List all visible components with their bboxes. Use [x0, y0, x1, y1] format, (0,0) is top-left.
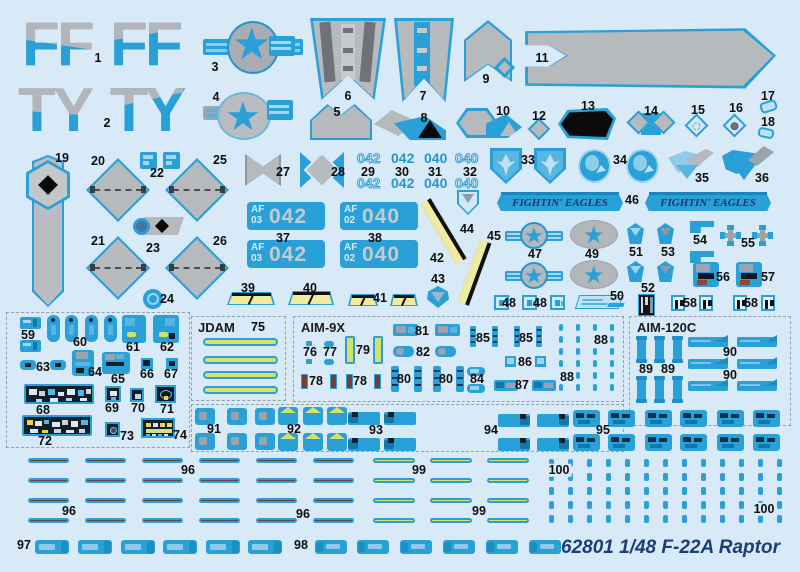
aim120-rail-90-part — [716, 335, 728, 342]
diamond-panel-20-part — [94, 189, 142, 191]
part-number-30: 30 — [395, 166, 409, 179]
pylon-97 — [121, 540, 155, 554]
stripe-grid-96-dot — [256, 518, 297, 523]
striped-bar-85-part — [493, 341, 497, 343]
spare-bar-part — [271, 47, 291, 50]
part-number-93: 93 — [369, 424, 383, 437]
part-number-32: 32 — [463, 166, 477, 179]
part-number-64: 64 — [88, 366, 102, 379]
aim120-bar-89 — [673, 376, 682, 403]
cross-55-part — [759, 241, 766, 246]
tail-code-TY-1: TYTY — [18, 78, 100, 136]
panel-52-part — [650, 297, 653, 313]
tail-number-plate-37-part: 03 — [251, 216, 262, 227]
cluster-95-part — [576, 413, 584, 418]
dot-grid-100-dot — [549, 515, 554, 523]
cluster-95 — [717, 410, 744, 427]
instrument-panel-74-part — [167, 423, 172, 427]
pylon-98-part — [487, 542, 494, 552]
dot-grid-100-dot — [663, 473, 668, 481]
star-glyph: ★ — [225, 96, 261, 138]
fitting-91 — [255, 433, 275, 450]
dot-grid-88-dot — [610, 324, 614, 331]
part-number-80: 80 — [439, 373, 453, 386]
part-number-71: 71 — [160, 403, 174, 416]
tail-number-plate-37-part: 042 — [269, 244, 307, 266]
badge-53-part — [660, 266, 671, 274]
dot-grid-100-dot — [682, 501, 687, 509]
part-number-47: 47 — [528, 248, 542, 261]
cross-55-part — [759, 225, 766, 230]
pylon-98 — [486, 540, 518, 554]
weapon-mark-87-part — [544, 383, 553, 388]
instrument-panel-74 — [141, 418, 175, 438]
weapon-mark-81 — [435, 324, 460, 336]
seat-handle-60-part — [108, 325, 113, 335]
dot-grid-100-dot — [758, 515, 763, 523]
cluster-95-part — [758, 444, 770, 448]
roundel-49: ★ — [570, 260, 618, 289]
dot-grid-100-dot — [644, 459, 649, 467]
instrument-panel-74-part — [153, 423, 158, 427]
part-number-97: 97 — [17, 539, 31, 552]
fitting-92-part — [329, 433, 345, 439]
stripe-grid-96-dot — [313, 518, 354, 523]
cluster-95 — [753, 410, 780, 427]
part-number-50: 50 — [610, 290, 624, 303]
banner-decal-11-part — [523, 25, 773, 89]
instrument-panel-69 — [105, 386, 121, 402]
pylon-98-part — [326, 544, 340, 549]
instrument-panel-72-part — [27, 420, 33, 425]
instrument-panel-72-part — [42, 430, 48, 433]
fitting-91-part — [231, 437, 239, 445]
part-number-36: 36 — [755, 172, 769, 185]
probe-94-part — [520, 414, 526, 419]
dot-grid-100-dot — [739, 487, 744, 495]
aim120-rail-90-part — [740, 340, 760, 342]
part-number-44: 44 — [460, 223, 474, 236]
probe-94 — [498, 438, 530, 451]
cockpit-63 — [20, 360, 36, 370]
part-number-10: 10 — [496, 105, 510, 118]
cockpit-59-part — [23, 343, 31, 346]
cockpit-65-part — [116, 354, 124, 359]
cluster-95-part — [694, 438, 702, 442]
equipment-57-part — [739, 264, 753, 272]
hex-decal-10-part-part — [500, 122, 518, 136]
part-number-76: 76 — [303, 346, 317, 359]
part-number-77: 77 — [323, 346, 337, 359]
fightin-eagles-banner-part: FIGHTIN' EAGLES — [497, 198, 623, 210]
placard-48-part — [527, 300, 532, 306]
aim120-bar-89-part — [654, 399, 665, 403]
instrument-panel-69-part — [111, 397, 116, 400]
aim120-bar-89 — [637, 336, 646, 363]
decal-sheet: 62801 1/48 F-22A Raptor JDAMAIM-9XAIM-12… — [0, 0, 800, 572]
cluster-95-part — [659, 438, 667, 442]
probe-94 — [498, 414, 530, 427]
cluster-95-part — [683, 413, 691, 418]
diamond-panel-21-part — [141, 264, 146, 271]
part-number-5: 5 — [334, 106, 341, 119]
cockpit-65 — [102, 352, 130, 374]
dot-grid-100-dot — [777, 459, 782, 467]
weapon-mark-87 — [532, 380, 556, 391]
spare-bar-part — [271, 41, 291, 44]
cockpit-64-part — [76, 352, 88, 359]
pylon-98 — [400, 540, 432, 554]
aim120-rail-90-part — [765, 335, 777, 342]
aim120-rail-90-part — [691, 362, 711, 364]
part-number-55: 55 — [741, 237, 755, 250]
intake-stripe-41 — [390, 294, 418, 306]
aim120-rail-90-part — [765, 379, 777, 386]
square-decal-22-part — [143, 161, 149, 165]
dot-grid-100-dot — [663, 487, 668, 495]
part-number-43: 43 — [431, 273, 445, 286]
cross-55-part — [727, 241, 734, 246]
cluster-95-part — [683, 437, 691, 442]
diagonal-stripe-45-part — [459, 240, 487, 304]
diamond-decal-16-part — [729, 121, 740, 132]
dot-grid-88-dot — [576, 360, 580, 367]
aim9x-band-78 — [346, 374, 353, 389]
part-number-4: 4 — [213, 91, 220, 104]
tail-number-plate-37-part: 03 — [251, 254, 262, 265]
part-number-91: 91 — [207, 423, 221, 436]
part-number-46: 46 — [625, 194, 639, 207]
stripe-grid-96-dot — [142, 478, 183, 483]
part-number-25: 25 — [213, 154, 227, 167]
placard-58-part — [703, 300, 706, 309]
cluster-95-part — [622, 414, 630, 418]
box-title-aim120c: AIM-120C — [637, 321, 696, 335]
instrument-panel-68-part — [36, 399, 42, 402]
dot-grid-100-dot — [606, 487, 611, 495]
instrument-panel-71 — [155, 385, 176, 403]
dot-grid-100-dot — [701, 501, 706, 509]
fightin-eagles-banner: FIGHTIN' EAGLES — [497, 192, 623, 213]
box-title-jdam: JDAM — [198, 321, 235, 335]
dot-grid-88-dot — [576, 324, 580, 331]
aim9x-band-79 — [373, 336, 383, 364]
part-number-74: 74 — [173, 429, 187, 442]
dot-grid-100-dot — [682, 515, 687, 523]
dot-grid-88-dot — [610, 372, 614, 379]
spare-bar-part — [269, 111, 289, 114]
part-number-75: 75 — [251, 321, 265, 334]
chevron-decal-5-part — [312, 106, 370, 138]
badge-43 — [427, 286, 449, 308]
aim120-rail-90 — [688, 337, 728, 347]
box-title-aim9x: AIM-9X — [301, 321, 345, 335]
placard-48-part — [561, 301, 563, 306]
cluster-95-part — [767, 414, 775, 418]
stripe-grid-96-dot — [313, 478, 354, 483]
instrument-panel-68 — [24, 384, 94, 404]
cluster-95-part — [613, 444, 625, 448]
stripe-grid-96-dot — [199, 518, 240, 523]
aim120-bar-89-part — [636, 399, 647, 403]
part-number-96: 96 — [296, 508, 310, 521]
part-number-8: 8 — [421, 112, 428, 125]
tail-number-plate-37: AF03042 — [247, 202, 325, 230]
tail-number-plate-38-part: AF — [344, 205, 357, 216]
cockpit-59 — [20, 340, 41, 352]
seat-handle-60-part — [89, 318, 93, 322]
badge-43-part — [431, 292, 445, 302]
striped-bar-80-part — [457, 370, 463, 372]
cockpit-59-part — [33, 342, 37, 350]
instrument-panel-72-part — [54, 429, 61, 433]
stripe-grid-99-dot — [487, 458, 529, 463]
cluster-95 — [645, 434, 672, 451]
pylon-98-part — [444, 542, 451, 552]
shield-44 — [457, 190, 479, 215]
instrument-panel-74-part — [146, 429, 172, 433]
part-number-69: 69 — [105, 402, 119, 415]
dot-grid-100-dot — [606, 459, 611, 467]
fitting-91-part — [231, 412, 239, 420]
stripe-grid-96-dot — [28, 518, 69, 523]
diamond-decal-16 — [722, 113, 746, 137]
pylon-97-part — [104, 541, 111, 553]
stripe-grid-96-dot — [85, 498, 126, 503]
stripe-grid-99-dot — [373, 458, 415, 463]
dot-grid-100-dot — [777, 501, 782, 509]
pylon-97-part — [274, 541, 281, 553]
part-number-27: 27 — [276, 166, 290, 179]
dot-grid-100-dot — [682, 459, 687, 467]
pylon-98-part — [540, 544, 554, 549]
dot-grid-88-dot — [610, 384, 614, 391]
striped-bar-80-part — [457, 384, 463, 386]
cluster-95 — [753, 434, 780, 451]
pylon-98-part — [411, 544, 425, 549]
dot-grid-100-dot — [606, 501, 611, 509]
aim120-bar-89-part — [636, 336, 647, 340]
aim9x-band-78 — [301, 374, 308, 389]
dot-grid-88-dot — [559, 360, 563, 367]
panel-52-part — [645, 297, 648, 305]
dot-grid-100-dot — [568, 487, 573, 495]
pylon-97-part — [82, 544, 98, 550]
stripe-grid-99-dot — [373, 498, 415, 503]
cockpit-66-part — [143, 360, 150, 366]
fightin-eagles-banner: FIGHTIN' EAGLES — [645, 192, 771, 213]
nozzle-decal-6-part — [343, 66, 353, 71]
probe-93-part — [352, 412, 358, 417]
weapon-mark-87-part — [496, 382, 504, 388]
fitting-91-part — [259, 437, 267, 445]
cluster-95-part — [587, 414, 595, 418]
striped-bar-80-part — [457, 377, 463, 379]
cluster-95-part — [756, 437, 764, 442]
cross-55-part — [720, 232, 725, 239]
part-number-58: 58 — [683, 297, 697, 310]
part-number-85: 85 — [476, 332, 490, 345]
spare-bar — [267, 100, 293, 120]
part-number-85: 85 — [519, 332, 533, 345]
cockpit-63-part — [25, 363, 31, 367]
cluster-95-part — [756, 413, 764, 418]
aim9x-band-79 — [345, 336, 355, 364]
stripe-grid-96-dot — [28, 458, 69, 463]
cockpit-65-part — [106, 362, 124, 366]
cluster-95-part — [722, 444, 734, 448]
placard-58-part — [770, 300, 774, 306]
equipment-56-part — [697, 280, 707, 285]
badge-51-part — [630, 266, 641, 274]
part-number-9: 9 — [483, 73, 490, 86]
pylon-97 — [206, 540, 240, 554]
diamond-panel-25-part — [220, 186, 225, 193]
part-number-20: 20 — [91, 155, 105, 168]
dot-grid-88-dot — [576, 372, 580, 379]
part-number-18: 18 — [761, 116, 775, 129]
equipment-57-part — [741, 273, 757, 279]
aim120-bar-89 — [655, 336, 664, 363]
striped-bar-85-part — [471, 341, 475, 343]
striped-bar-85-part — [537, 329, 541, 331]
square-86-part — [507, 358, 514, 364]
dot-grid-100-dot — [663, 459, 668, 467]
tail-number-plate-38-part: 040 — [362, 206, 400, 228]
panel-52 — [638, 294, 655, 316]
dot-grid-100-dot — [663, 515, 668, 523]
dot-grid-100-dot — [587, 459, 592, 467]
fitting-91 — [227, 408, 247, 425]
instrument-panel-74-part — [164, 434, 168, 436]
dot-grid-100-dot — [777, 473, 782, 481]
striped-bar-85 — [536, 326, 542, 347]
fitting-92-part — [329, 407, 345, 413]
dot-grid-100-dot — [606, 515, 611, 523]
pylon-97-part — [61, 541, 68, 553]
part-number-34: 34 — [613, 154, 627, 167]
cockpit-61-part — [127, 332, 136, 337]
cluster-95 — [608, 410, 635, 427]
tail-number-plate-38-part: 040 — [362, 244, 400, 266]
part-number-68: 68 — [36, 404, 50, 417]
aim120-bar-89-part — [654, 376, 665, 380]
aim120-rail-90-part — [765, 357, 777, 364]
part-number-51: 51 — [629, 246, 643, 259]
part-number-33: 33 — [521, 154, 535, 167]
part-number-1: 1 — [95, 52, 102, 65]
dot-grid-88-dot — [610, 336, 614, 343]
aim120-bar-89 — [655, 376, 664, 403]
aim9x-oval-77 — [324, 359, 334, 365]
dot-grid-100-dot — [682, 487, 687, 495]
part-number-90: 90 — [723, 369, 737, 382]
fitting-92-part — [305, 407, 321, 413]
nozzle-decal-7-part — [417, 48, 427, 53]
diamond-panel-26-part — [220, 264, 225, 271]
instrument-panel-68-part — [78, 390, 84, 396]
cross-55-part — [727, 225, 734, 230]
dot-grid-100-dot — [701, 487, 706, 495]
dot-grid-100-dot — [625, 515, 630, 523]
part-number-89: 89 — [661, 363, 675, 376]
part-number-40: 40 — [303, 282, 317, 295]
part-number-96: 96 — [181, 464, 195, 477]
stripe-grid-96-dot — [199, 498, 240, 503]
jdam-stripe-75 — [203, 386, 278, 394]
placard-48-part — [555, 300, 560, 306]
badge-53 — [657, 223, 674, 244]
star-glyph: ★ — [524, 264, 544, 287]
tail-number-plate-37-part: AF — [251, 243, 264, 254]
square-decal-22-part — [166, 155, 176, 159]
probe-94 — [537, 414, 569, 427]
aim120-bar-89-part — [654, 336, 665, 340]
stripe-grid-96-dot — [85, 478, 126, 483]
seat-handle-60-part — [51, 325, 56, 335]
striped-bar-80 — [414, 366, 422, 392]
part-number-82: 82 — [416, 346, 430, 359]
dot-grid-88-dot — [559, 336, 563, 343]
pylon-97-part — [39, 544, 55, 550]
cockpit-64-part — [76, 368, 84, 373]
striped-bar-85-part — [493, 329, 497, 331]
placard-58 — [761, 295, 775, 311]
square-decal-22-part — [143, 155, 153, 159]
part-number-70: 70 — [131, 402, 145, 415]
instrument-panel-68-part — [50, 398, 58, 402]
nozzle-decal-6-part — [343, 48, 353, 53]
aim9x-band-78 — [374, 374, 381, 389]
square-86 — [535, 356, 546, 367]
pylon-97 — [78, 540, 112, 554]
striped-bar-80-part — [415, 370, 421, 372]
part-number-14: 14 — [644, 105, 658, 118]
roundel-49: ★ — [570, 220, 618, 249]
diamond-decal-9b-part — [498, 61, 511, 74]
placard-58-part — [708, 300, 712, 306]
dot-grid-88-dot — [576, 336, 580, 343]
part-number-2: 2 — [104, 117, 111, 130]
star-glyph: ★ — [524, 224, 544, 247]
angular-decal-8 — [374, 106, 446, 140]
part-number-38: 38 — [368, 232, 382, 245]
hex-decal-10 — [456, 106, 522, 140]
stripe-grid-96-dot — [85, 458, 126, 463]
placard-58-part — [675, 300, 678, 309]
part-number-92: 92 — [287, 423, 301, 436]
part-number-13: 13 — [581, 100, 595, 113]
instrument-panel-74-part — [152, 434, 156, 436]
part-number-99: 99 — [472, 505, 486, 518]
pylon-97-part — [147, 541, 154, 553]
diamond-decal-15 — [684, 113, 708, 137]
cluster-95-part — [685, 420, 697, 424]
instrument-panel-74-part — [158, 434, 162, 436]
instrument-panel-74-part — [160, 423, 165, 427]
instrument-panel-68-part — [86, 389, 91, 394]
cluster-95-part — [659, 414, 667, 418]
dot-grid-88-dot — [593, 324, 597, 331]
part-number-90: 90 — [723, 346, 737, 359]
part-number-94: 94 — [484, 424, 498, 437]
tail-code-FF-1: FFFF — [22, 12, 100, 70]
part-number-35: 35 — [695, 172, 709, 185]
dot-grid-100-dot — [758, 473, 763, 481]
part-number-98: 98 — [294, 539, 308, 552]
striped-bar-80 — [456, 366, 464, 392]
aim120-bar-89-part — [672, 336, 683, 340]
